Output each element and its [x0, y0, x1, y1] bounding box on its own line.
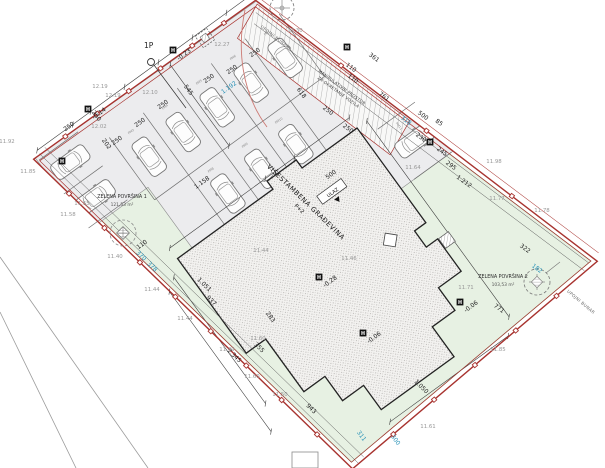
svg-text:11.58: 11.58 — [60, 212, 76, 218]
svg-text:H: H — [361, 331, 365, 337]
svg-text:12.02: 12.02 — [91, 124, 106, 130]
svg-text:11.92: 11.92 — [0, 139, 15, 145]
svg-text:11.98: 11.98 — [486, 159, 502, 165]
svg-text:11.64: 11.64 — [405, 165, 421, 171]
svg-text:UPOJNI BUNAR: UPOJNI BUNAR — [565, 289, 596, 316]
parking-leader-node — [148, 59, 155, 66]
svg-text:11.55: 11.55 — [74, 201, 89, 207]
svg-text:12.19: 12.19 — [105, 93, 121, 99]
svg-text:H: H — [171, 48, 175, 54]
svg-text:85: 85 — [434, 118, 444, 128]
svg-text:H: H — [317, 275, 321, 281]
svg-text:11.44: 11.44 — [253, 248, 269, 254]
svg-text:11.77: 11.77 — [489, 196, 504, 202]
svg-text:ZELENA POVRŠINA 1: ZELENA POVRŠINA 1 — [97, 193, 147, 200]
svg-text:H: H — [86, 107, 90, 113]
site-plan-drawing: PM1PM2PM3PM4PM5PM6PM7PM8PM9PM10PM11 1P V… — [0, 0, 605, 468]
svg-text:11.44: 11.44 — [177, 316, 193, 322]
site-plan-canvas: PM1PM2PM3PM4PM5PM6PM7PM8PM9PM10PM11 1P V… — [0, 0, 605, 468]
svg-text:103,53 m²: 103,53 m² — [492, 282, 515, 288]
svg-text:361: 361 — [367, 52, 381, 65]
parking-count-label: 1P — [144, 41, 154, 50]
svg-text:11.85: 11.85 — [20, 169, 35, 175]
svg-text:300: 300 — [389, 433, 402, 447]
svg-text:12.30: 12.30 — [287, 28, 303, 34]
svg-text:12.10: 12.10 — [142, 90, 158, 96]
svg-text:11.85: 11.85 — [490, 347, 505, 353]
svg-text:11.50: 11.50 — [272, 392, 288, 398]
svg-text:121,53 m²: 121,53 m² — [111, 202, 134, 208]
svg-text:11.78: 11.78 — [534, 208, 550, 214]
svg-text:11.46: 11.46 — [341, 256, 357, 262]
svg-text:11.60: 11.60 — [250, 336, 266, 342]
svg-text:11.60: 11.60 — [244, 374, 260, 380]
svg-text:11.61: 11.61 — [420, 424, 435, 430]
svg-text:11.40: 11.40 — [107, 254, 123, 260]
svg-text:11.71: 11.71 — [458, 285, 473, 291]
svg-text:H: H — [345, 45, 349, 51]
svg-text:H: H — [458, 300, 462, 306]
svg-text:H: H — [428, 140, 432, 146]
svg-text:11.44: 11.44 — [144, 287, 160, 293]
svg-text:11.49: 11.49 — [219, 347, 235, 353]
svg-text:ZELENA POVRŠINA 2: ZELENA POVRŠINA 2 — [478, 273, 528, 280]
parcel-geometry: PM1PM2PM3PM4PM5PM6PM7PM8PM9PM10PM11 — [29, 0, 605, 468]
svg-text:12.19: 12.19 — [92, 84, 108, 90]
svg-text:500: 500 — [416, 110, 430, 123]
svg-text:H: H — [60, 159, 64, 165]
svg-text:12.27: 12.27 — [214, 42, 229, 48]
